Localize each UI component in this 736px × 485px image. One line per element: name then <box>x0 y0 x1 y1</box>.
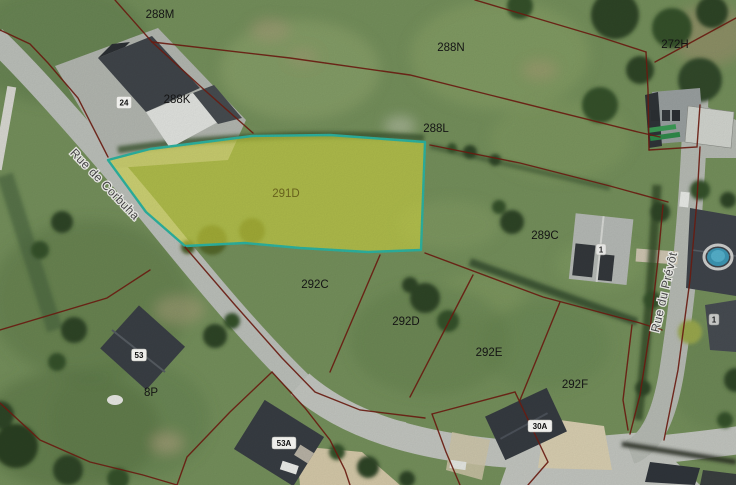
cadastral-map-viewport[interactable]: 288M 288N 272H 288K 288L 291D 289C 292C … <box>0 0 736 485</box>
photo-grain-overlay <box>0 0 736 485</box>
map-canvas: 288M 288N 272H 288K 288L 291D 289C 292C … <box>0 0 736 485</box>
